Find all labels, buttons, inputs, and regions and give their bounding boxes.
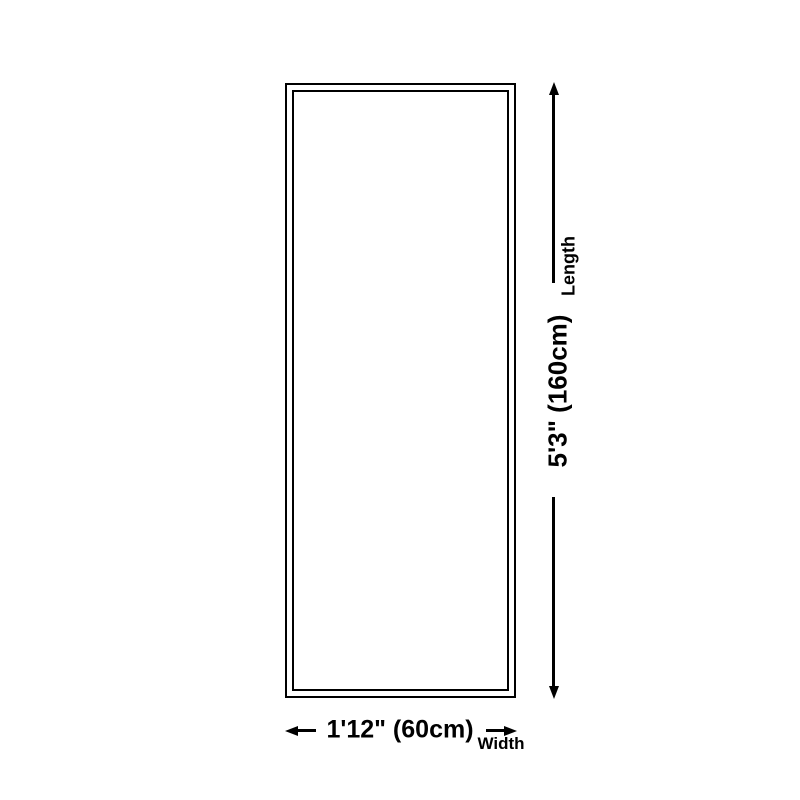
length-dimension-line-top [548, 82, 559, 283]
product-outline-outer [285, 83, 516, 698]
width-dimension-line-left [285, 725, 316, 736]
width-line-left-segment [298, 729, 316, 732]
up-arrow-icon [549, 82, 559, 95]
width-axis-label: Width [477, 734, 524, 754]
left-arrow-icon [285, 726, 298, 736]
length-value: 5'3" (160cm) [543, 315, 574, 468]
length-dimension-line-bottom [548, 497, 559, 699]
dimension-diagram: Length 5'3" (160cm) 1'12" (60cm) Width [0, 0, 800, 800]
down-arrow-icon [549, 686, 559, 699]
width-value: 1'12" (60cm) [326, 716, 473, 745]
width-line-right-segment [486, 729, 504, 732]
length-line-lower-segment [552, 497, 555, 686]
length-axis-label: Length [559, 236, 580, 296]
length-line-upper-segment [552, 95, 555, 283]
product-outline-inner [292, 90, 509, 691]
